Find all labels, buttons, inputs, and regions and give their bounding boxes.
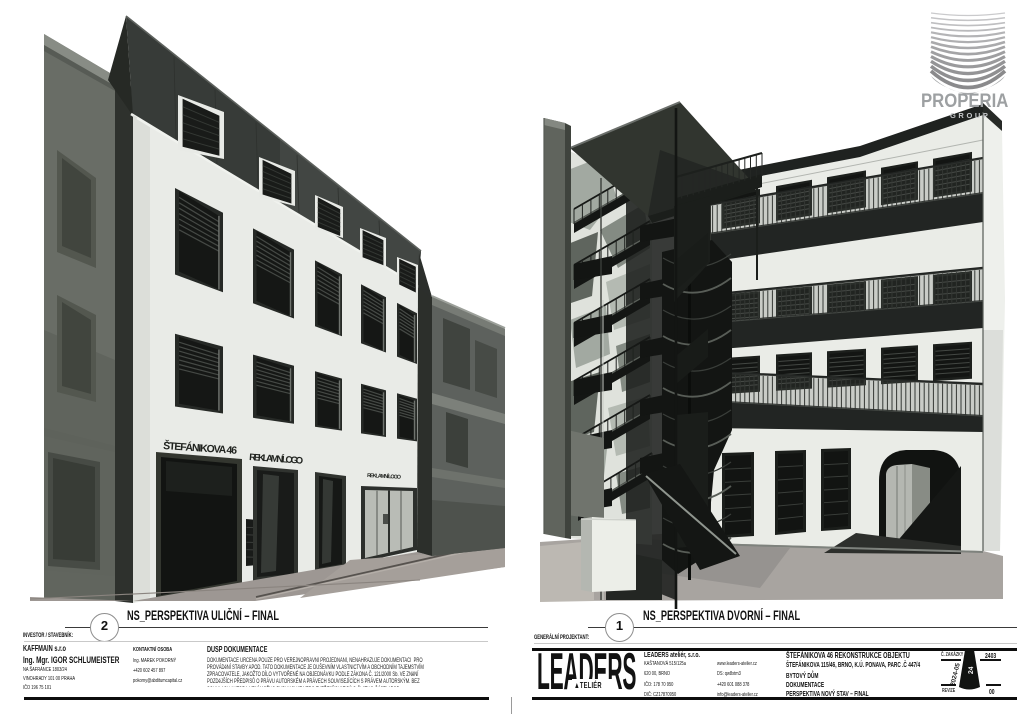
svg-text:24: 24 <box>968 666 975 674</box>
